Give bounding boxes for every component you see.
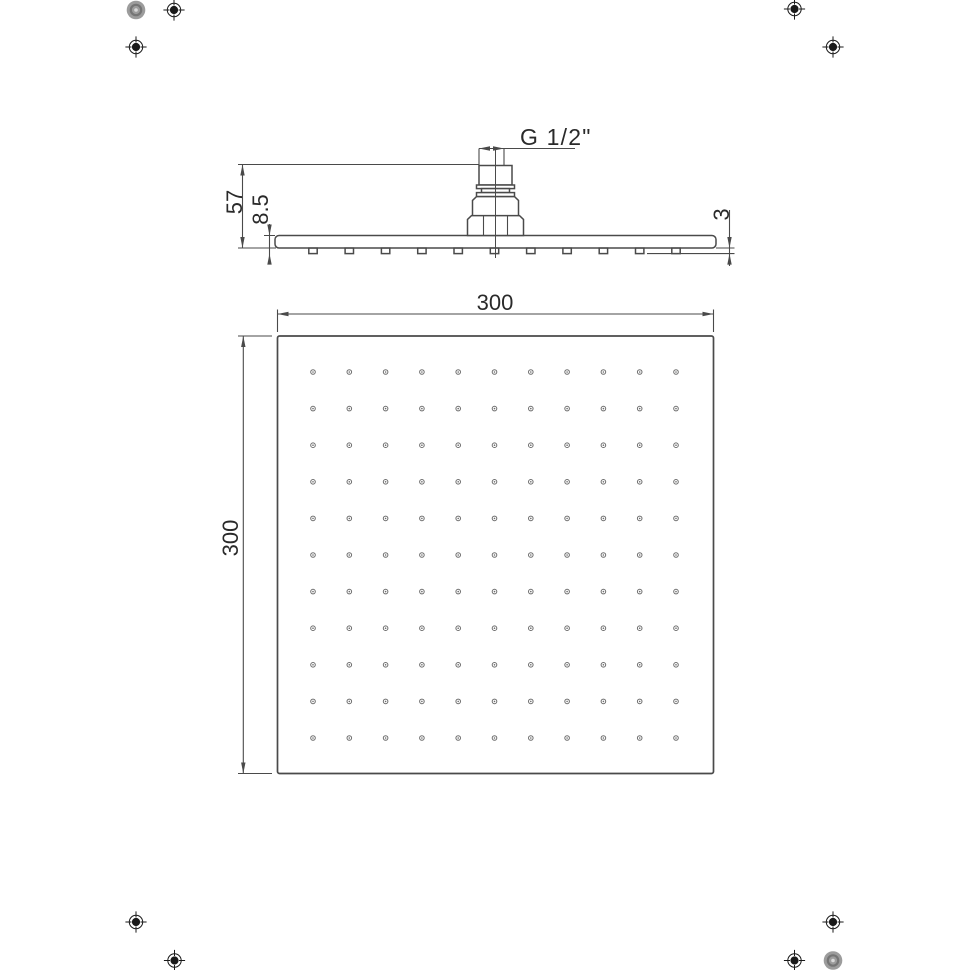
nozzle-dot-center (421, 591, 423, 593)
side-nozzle (672, 248, 680, 254)
arrow-down-icon (267, 225, 271, 236)
nozzle-dot-center (312, 554, 314, 556)
nozzle-dot-center (530, 408, 532, 410)
nozzle-dot-center (639, 371, 641, 373)
nozzle-dot-center (349, 664, 351, 666)
arrow-up-icon (727, 254, 731, 265)
nozzle-dot-center (349, 444, 351, 446)
nozzle-dot-center (349, 408, 351, 410)
nozzle-dot-center (639, 737, 641, 739)
nozzle-dot-center (639, 518, 641, 520)
nozzle-dot-center (349, 701, 351, 703)
nozzle-dot-center (675, 701, 677, 703)
nozzle-dot-center (603, 737, 605, 739)
nozzle-dot-center (530, 518, 532, 520)
nozzle-dot-center (566, 554, 568, 556)
nozzle-dot-center (603, 444, 605, 446)
nozzle-dot-center (566, 701, 568, 703)
halftone-dot-icon (127, 1, 146, 20)
nozzle-dot-center (494, 664, 496, 666)
nozzle-dot-center (530, 371, 532, 373)
nozzle-dot-center (457, 554, 459, 556)
nozzle-dot-center (675, 481, 677, 483)
nozzle-dot-center (603, 481, 605, 483)
nozzle-dot-center (421, 737, 423, 739)
nozzle-dot-center (312, 444, 314, 446)
nozzle-dot-center (421, 408, 423, 410)
nozzle-dot-center (421, 481, 423, 483)
nozzle-dot-center (494, 481, 496, 483)
arrow-right-icon (493, 146, 504, 150)
nozzle-dot-center (349, 554, 351, 556)
registration-target-icon (822, 36, 843, 57)
nozzle-dot-center (494, 408, 496, 410)
nozzle-dot-center (457, 701, 459, 703)
nozzle-dot-center (494, 371, 496, 373)
nozzle-dot-center (566, 737, 568, 739)
nozzle-dot-center (385, 444, 387, 446)
nozzle-dot-center (494, 627, 496, 629)
head-face-plate (278, 336, 714, 774)
dim-head-thickness: 8.5 (248, 194, 275, 264)
side-nozzle (381, 248, 389, 254)
registration-target-icon (784, 0, 805, 20)
dim-label-head-thickness: 8.5 (248, 194, 273, 225)
nozzle-dot-center (566, 408, 568, 410)
nozzle-dot-center (385, 371, 387, 373)
dim-label-thread: G 1/2" (520, 124, 592, 150)
nozzle-dot-center (675, 444, 677, 446)
nozzle-dot-center (421, 554, 423, 556)
nozzle-dot-center (421, 444, 423, 446)
nozzle-dot-center (457, 444, 459, 446)
nozzle-dot-center (312, 627, 314, 629)
nozzle-dot-center (603, 371, 605, 373)
nozzle-dot-center (603, 408, 605, 410)
nozzle-dot-center (566, 518, 568, 520)
nozzle-dot-center (312, 481, 314, 483)
side-nozzle (490, 248, 498, 254)
nozzle-dot-center (385, 627, 387, 629)
nozzle-dot-center (530, 701, 532, 703)
nozzle-dot-center (639, 481, 641, 483)
nozzle-dot-center (494, 518, 496, 520)
nozzle-dot-center (312, 408, 314, 410)
nozzle-dot-center (494, 591, 496, 593)
nozzle-dot-center (457, 627, 459, 629)
arrow-right-icon (703, 312, 714, 316)
nozzle-dot-center (675, 554, 677, 556)
side-nozzle (309, 248, 317, 254)
nozzle-dot-center (603, 627, 605, 629)
nozzle-dot-center (349, 591, 351, 593)
nozzle-dot-center (385, 554, 387, 556)
nozzle-dot-center (566, 481, 568, 483)
nozzle-dot-center (457, 591, 459, 593)
nozzle-dot-center (530, 481, 532, 483)
arrow-down-icon (727, 237, 731, 248)
nozzle-dot-center (312, 518, 314, 520)
nozzle-dot-center (639, 664, 641, 666)
nozzle-dot-center (675, 737, 677, 739)
nozzle-dot-center (639, 444, 641, 446)
nozzle-dot-center (639, 627, 641, 629)
dim-height-lines (238, 336, 272, 774)
nozzle-dot-center (312, 737, 314, 739)
nozzle-dot-center (312, 371, 314, 373)
dim-label-width: 300 (477, 290, 514, 315)
nozzle-dot-center (494, 737, 496, 739)
nozzle-dot-center (639, 591, 641, 593)
nozzle-dot-center (385, 481, 387, 483)
side-nozzle (636, 248, 644, 254)
nozzle-dot-center (675, 408, 677, 410)
nozzle-dot-center (385, 664, 387, 666)
side-nozzle (345, 248, 353, 254)
nozzle-dot-center (312, 591, 314, 593)
registration-target-icon (163, 0, 184, 21)
registration-target-icon (125, 911, 146, 932)
side-nozzle (599, 248, 607, 254)
arrow-left-icon (479, 146, 490, 150)
nozzle-dot-center (566, 627, 568, 629)
nozzle-dot-center (385, 518, 387, 520)
registration-target-icon (125, 36, 146, 57)
nozzle-dot-center (603, 701, 605, 703)
arrow-left-icon (278, 312, 289, 316)
nozzle-dot-center (530, 627, 532, 629)
nozzle-dot-center (312, 664, 314, 666)
nozzle-dot-center (603, 664, 605, 666)
dim-width: 300 (278, 290, 714, 332)
nozzle-dot-center (385, 701, 387, 703)
nozzle-dot-center (566, 591, 568, 593)
nozzle-dot-center (457, 371, 459, 373)
nozzle-dot-center (385, 591, 387, 593)
nozzle-dot-center (639, 554, 641, 556)
arrow-down-icon (240, 237, 244, 248)
dim-height: 300 (218, 336, 272, 774)
side-nozzle (527, 248, 535, 254)
nozzle-dot-center (457, 737, 459, 739)
nozzle-dot-center (349, 737, 351, 739)
side-nozzle (454, 248, 462, 254)
nozzle-dot-center (421, 664, 423, 666)
nozzle-dot-center (385, 737, 387, 739)
nozzle-dot-center (457, 408, 459, 410)
side-nozzle (418, 248, 426, 254)
bottom-view: 300 300 (218, 290, 714, 774)
nozzle-dot-center (675, 371, 677, 373)
nozzle-dot-center (349, 627, 351, 629)
nozzle-dot-center (675, 591, 677, 593)
nozzle-dot-center (603, 554, 605, 556)
nozzle-dot-center (566, 664, 568, 666)
nozzle-dot-center (494, 554, 496, 556)
nozzle-dot-center (349, 518, 351, 520)
arrow-down-icon (241, 763, 245, 774)
nozzle-dot-center (530, 554, 532, 556)
arrow-up-icon (240, 165, 244, 176)
shower-head-profile (275, 150, 716, 258)
nozzle-dot-center (603, 518, 605, 520)
nozzle-dot-center (530, 444, 532, 446)
dim-label-nozzle-protrusion: 3 (709, 208, 734, 220)
nozzle-dot-center (639, 701, 641, 703)
nozzle-dot-center (566, 444, 568, 446)
nozzle-dot-center (494, 444, 496, 446)
nozzle-dot-center (312, 701, 314, 703)
technical-drawing-sheet: G 1/2" 57 8.5 3 (0, 0, 970, 970)
halftone-dot-icon (824, 951, 843, 970)
arrow-up-icon (241, 336, 245, 347)
drawing-svg: G 1/2" 57 8.5 3 (0, 0, 970, 970)
nozzle-dot-center (530, 737, 532, 739)
nozzle-dot-center (675, 664, 677, 666)
arrow-up-icon (267, 254, 271, 265)
dim-thread-lines (479, 149, 575, 166)
nozzle-dot-center (675, 627, 677, 629)
nozzle-dot-center (639, 408, 641, 410)
nozzle-dot-center (421, 701, 423, 703)
nozzle-dot-center (457, 481, 459, 483)
registration-target-icon (822, 911, 843, 932)
nozzle-dot-center (457, 518, 459, 520)
nozzle-dot-center (494, 701, 496, 703)
dim-label-overall-height: 57 (222, 190, 247, 214)
nozzle-dot-center (675, 518, 677, 520)
nozzle-dot-center (603, 591, 605, 593)
nozzle-dot-center (566, 371, 568, 373)
nozzle-dot-center (385, 408, 387, 410)
nozzle-dot-center (457, 664, 459, 666)
side-nozzle (563, 248, 571, 254)
nozzle-dot-center (421, 627, 423, 629)
nozzle-dot-center (421, 371, 423, 373)
nozzle-dot-center (530, 591, 532, 593)
side-nozzle-row (309, 248, 680, 254)
nozzle-dot-center (349, 481, 351, 483)
nozzle-dot-center (421, 518, 423, 520)
nozzle-dot-center (349, 371, 351, 373)
nozzle-dot-center (530, 664, 532, 666)
dim-label-height: 300 (218, 520, 243, 557)
registration-target-icon (164, 950, 185, 970)
registration-target-icon (784, 950, 805, 970)
side-view: G 1/2" 57 8.5 3 (222, 124, 735, 266)
